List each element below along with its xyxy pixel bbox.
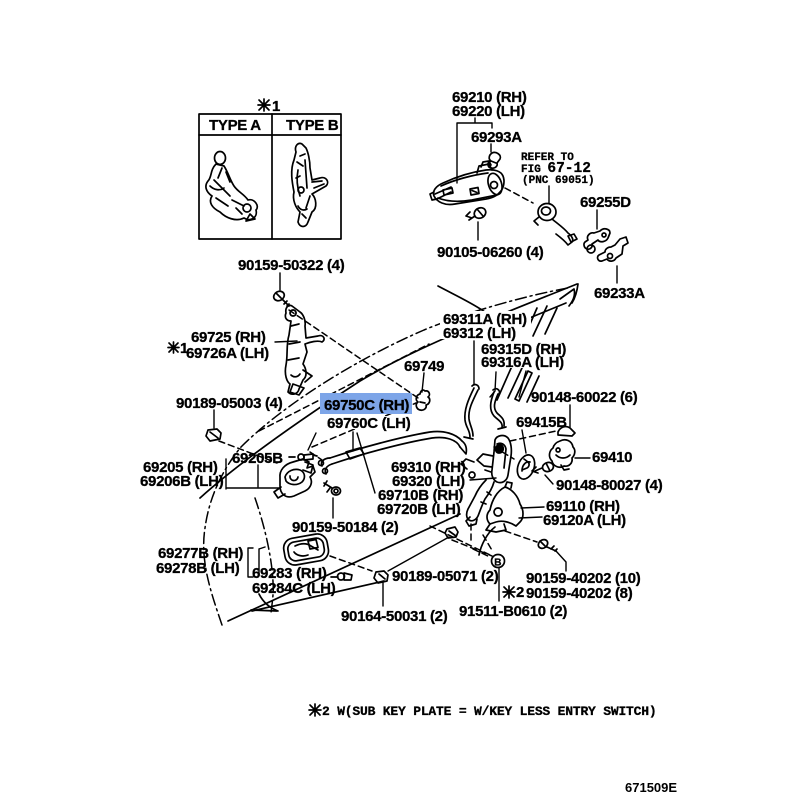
svg-text:90159-40202 (8): 90159-40202 (8) [526, 585, 633, 602]
svg-text:90159-50184 (2): 90159-50184 (2) [292, 519, 399, 536]
svg-text:90189-05003 (4): 90189-05003 (4) [176, 395, 283, 412]
svg-text:671509E: 671509E [625, 780, 677, 795]
svg-text:69233A: 69233A [594, 285, 645, 302]
svg-text:69316A (LH): 69316A (LH) [481, 354, 564, 371]
svg-text:1: 1 [272, 98, 280, 115]
svg-text:69284C (LH): 69284C (LH) [252, 580, 336, 597]
svg-text:69120A (LH): 69120A (LH) [543, 512, 626, 529]
svg-text:90148-80027 (4): 90148-80027 (4) [556, 477, 663, 494]
svg-text:69760C (LH): 69760C (LH) [327, 415, 411, 432]
svg-text:2 W(SUB KEY PLATE = W/KEY LESS: 2 W(SUB KEY PLATE = W/KEY LESS ENTRY SWI… [322, 704, 656, 719]
svg-text:69255D: 69255D [580, 194, 631, 211]
svg-text:90105-06260 (4): 90105-06260 (4) [437, 244, 544, 261]
svg-text:90164-50031 (2): 90164-50031 (2) [341, 608, 448, 625]
svg-text:90189-05071 (2): 90189-05071 (2) [392, 568, 499, 585]
svg-text:TYPE A: TYPE A [209, 117, 261, 134]
svg-text:69293A: 69293A [471, 129, 522, 146]
svg-text:B: B [494, 558, 501, 569]
svg-text:90159-50322 (4): 90159-50322 (4) [238, 257, 345, 274]
svg-text:69726A (LH): 69726A (LH) [186, 345, 269, 362]
svg-text:91511-B0610 (2): 91511-B0610 (2) [459, 603, 567, 620]
svg-text:69206B (LH): 69206B (LH) [140, 473, 224, 490]
svg-text:69278B (LH): 69278B (LH) [156, 560, 240, 577]
svg-text:2: 2 [516, 584, 524, 601]
svg-text:69415B: 69415B [516, 414, 567, 431]
svg-text:69725 (RH): 69725 (RH) [191, 329, 266, 346]
svg-text:90148-60022 (6): 90148-60022 (6) [531, 389, 638, 406]
svg-text:TYPE B: TYPE B [286, 117, 339, 134]
svg-text:69750C (RH): 69750C (RH) [324, 397, 409, 414]
svg-text:69410: 69410 [592, 449, 632, 466]
svg-text:69312 (LH): 69312 (LH) [443, 325, 516, 342]
svg-text:69720B (LH): 69720B (LH) [377, 501, 461, 518]
svg-text:(PNC 69051): (PNC 69051) [522, 175, 595, 187]
svg-text:69220 (LH): 69220 (LH) [452, 103, 525, 120]
